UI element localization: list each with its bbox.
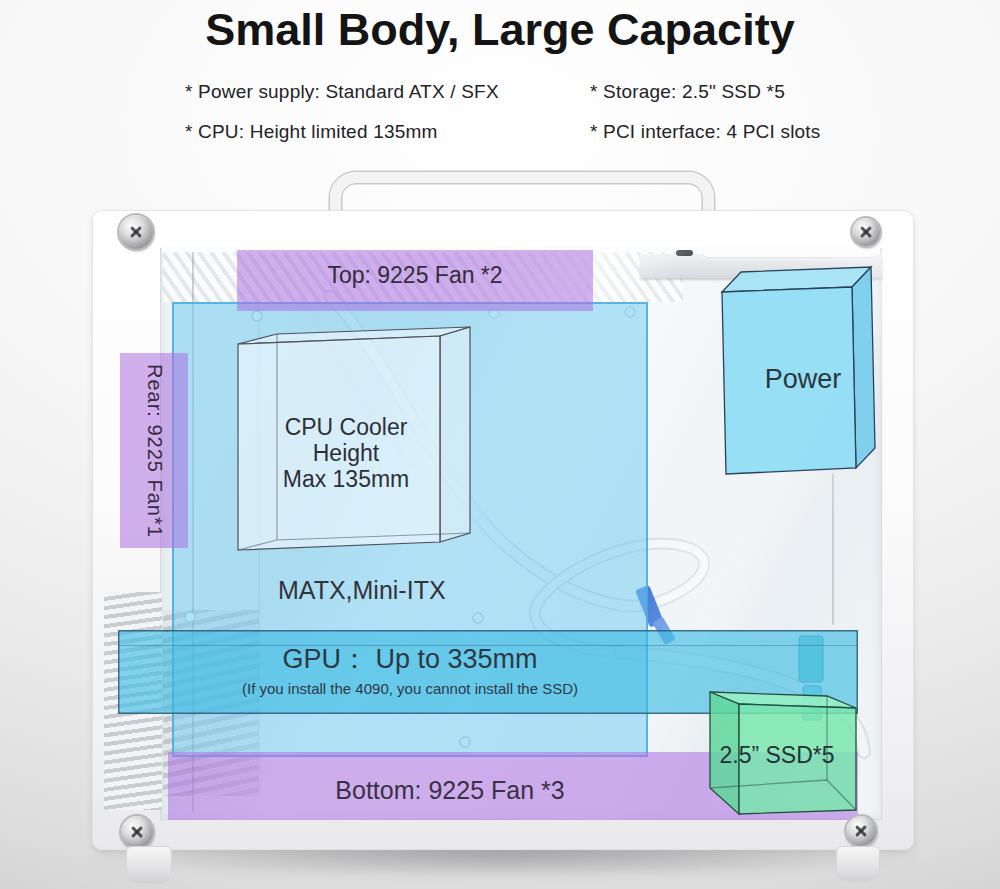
cpu-cooler-label-line3: Max 135mm (248, 466, 444, 492)
bottom-fan-label: Bottom: 9225 Fan *3 (180, 776, 720, 805)
screw-top-left (119, 215, 153, 249)
ssd-label: 2.5” SSD*5 (702, 742, 852, 769)
gpu-note: (If you install the 4090, you cannot ins… (150, 680, 670, 697)
case-foot-left (126, 846, 172, 884)
screw-top-right (852, 218, 880, 246)
gpu-label: GPU： Up to 335mm (150, 641, 670, 677)
cpu-cooler-label-line1: CPU Cooler (248, 414, 444, 440)
power-label: Power (740, 364, 866, 395)
gpu-label-group: GPU： Up to 335mm (If you install the 409… (150, 641, 670, 697)
screw-bottom-right (846, 816, 876, 846)
product-infographic: Small Body, Large Capacity * Power suppl… (0, 0, 1000, 889)
cpu-cooler-label: CPU Cooler Height Max 135mm (248, 414, 444, 492)
top-fan-label: Top: 9225 Fan *2 (237, 262, 593, 289)
motherboard-label: MATX,Mini-ITX (278, 576, 446, 605)
case-foot-right (836, 846, 880, 882)
rear-fan-label: Rear: 9225 Fan*1 (131, 358, 177, 543)
cpu-cooler-label-line2: Height (248, 440, 444, 466)
screw-bottom-left (121, 816, 153, 848)
